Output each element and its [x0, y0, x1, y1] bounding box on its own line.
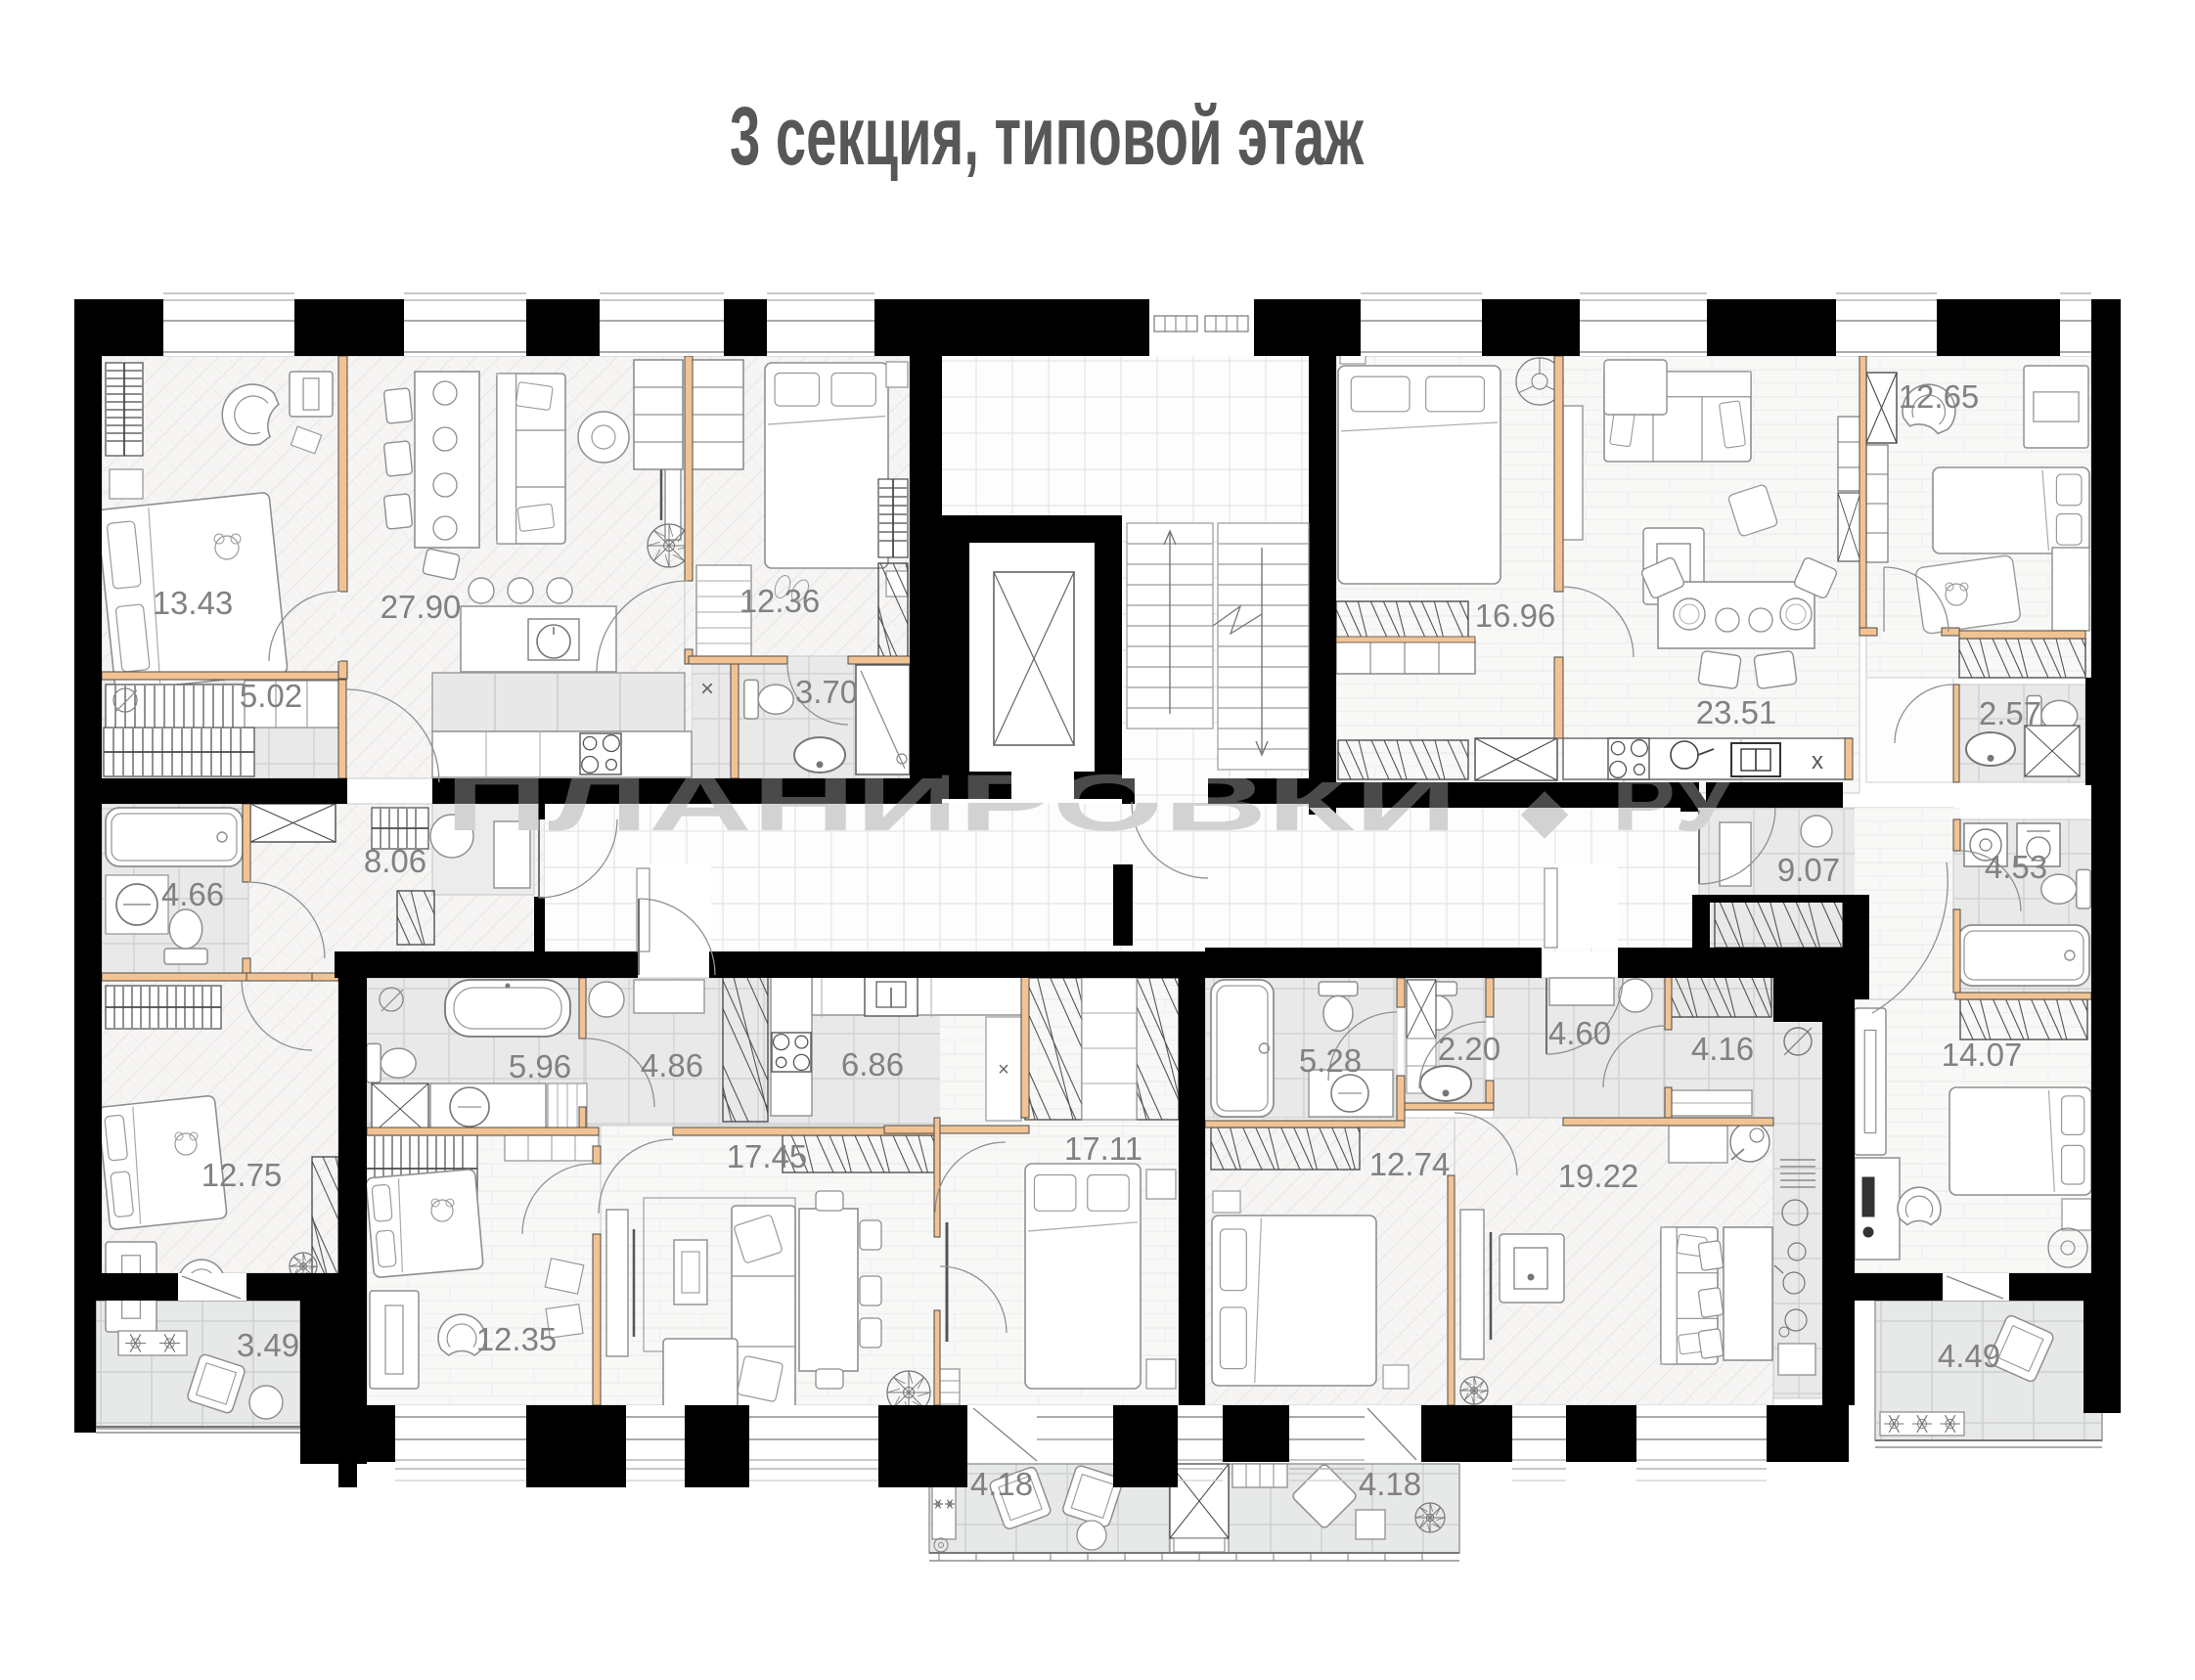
svg-text:23.51: 23.51 — [1696, 694, 1777, 730]
svg-text:4.86: 4.86 — [641, 1047, 703, 1083]
svg-text:4.53: 4.53 — [1985, 849, 2047, 885]
svg-text:17.11: 17.11 — [1064, 1130, 1142, 1167]
svg-text:x: x — [1812, 748, 1823, 774]
svg-text:2.20: 2.20 — [1438, 1031, 1501, 1067]
svg-text:12.36: 12.36 — [739, 583, 821, 619]
svg-text:3 секция, типовой этаж: 3 секция, типовой этаж — [730, 90, 1365, 182]
svg-text:4.18: 4.18 — [1359, 1466, 1421, 1502]
svg-text:4.60: 4.60 — [1548, 1015, 1611, 1051]
svg-text:13.43: 13.43 — [153, 585, 234, 621]
svg-text:9.07: 9.07 — [1777, 852, 1840, 888]
svg-text:4.49: 4.49 — [1938, 1338, 2000, 1374]
svg-text:8.06: 8.06 — [364, 843, 426, 879]
svg-text:3.70: 3.70 — [795, 674, 858, 710]
svg-text:5.02: 5.02 — [240, 678, 302, 714]
svg-text:12.65: 12.65 — [1899, 378, 1980, 415]
svg-text:12.74: 12.74 — [1369, 1146, 1451, 1182]
svg-text:27.90: 27.90 — [381, 589, 462, 625]
svg-text:3.49: 3.49 — [237, 1327, 299, 1363]
svg-text:14.07: 14.07 — [1942, 1037, 2023, 1073]
svg-text:4.16: 4.16 — [1691, 1031, 1754, 1067]
svg-text:17.45: 17.45 — [727, 1138, 808, 1174]
svg-text:12.75: 12.75 — [202, 1157, 283, 1193]
svg-text:×: × — [700, 676, 714, 702]
svg-text:4.66: 4.66 — [161, 876, 224, 912]
svg-text:×: × — [998, 1059, 1009, 1081]
svg-text:2.57: 2.57 — [1979, 695, 2041, 731]
svg-text:16.96: 16.96 — [1475, 597, 1556, 634]
svg-text:5.28: 5.28 — [1299, 1042, 1362, 1079]
svg-text:19.22: 19.22 — [1558, 1158, 1639, 1194]
svg-text:6.86: 6.86 — [841, 1046, 904, 1083]
svg-text:12.35: 12.35 — [476, 1321, 558, 1357]
svg-text:4.18: 4.18 — [970, 1466, 1033, 1502]
svg-text:5.96: 5.96 — [509, 1048, 571, 1084]
